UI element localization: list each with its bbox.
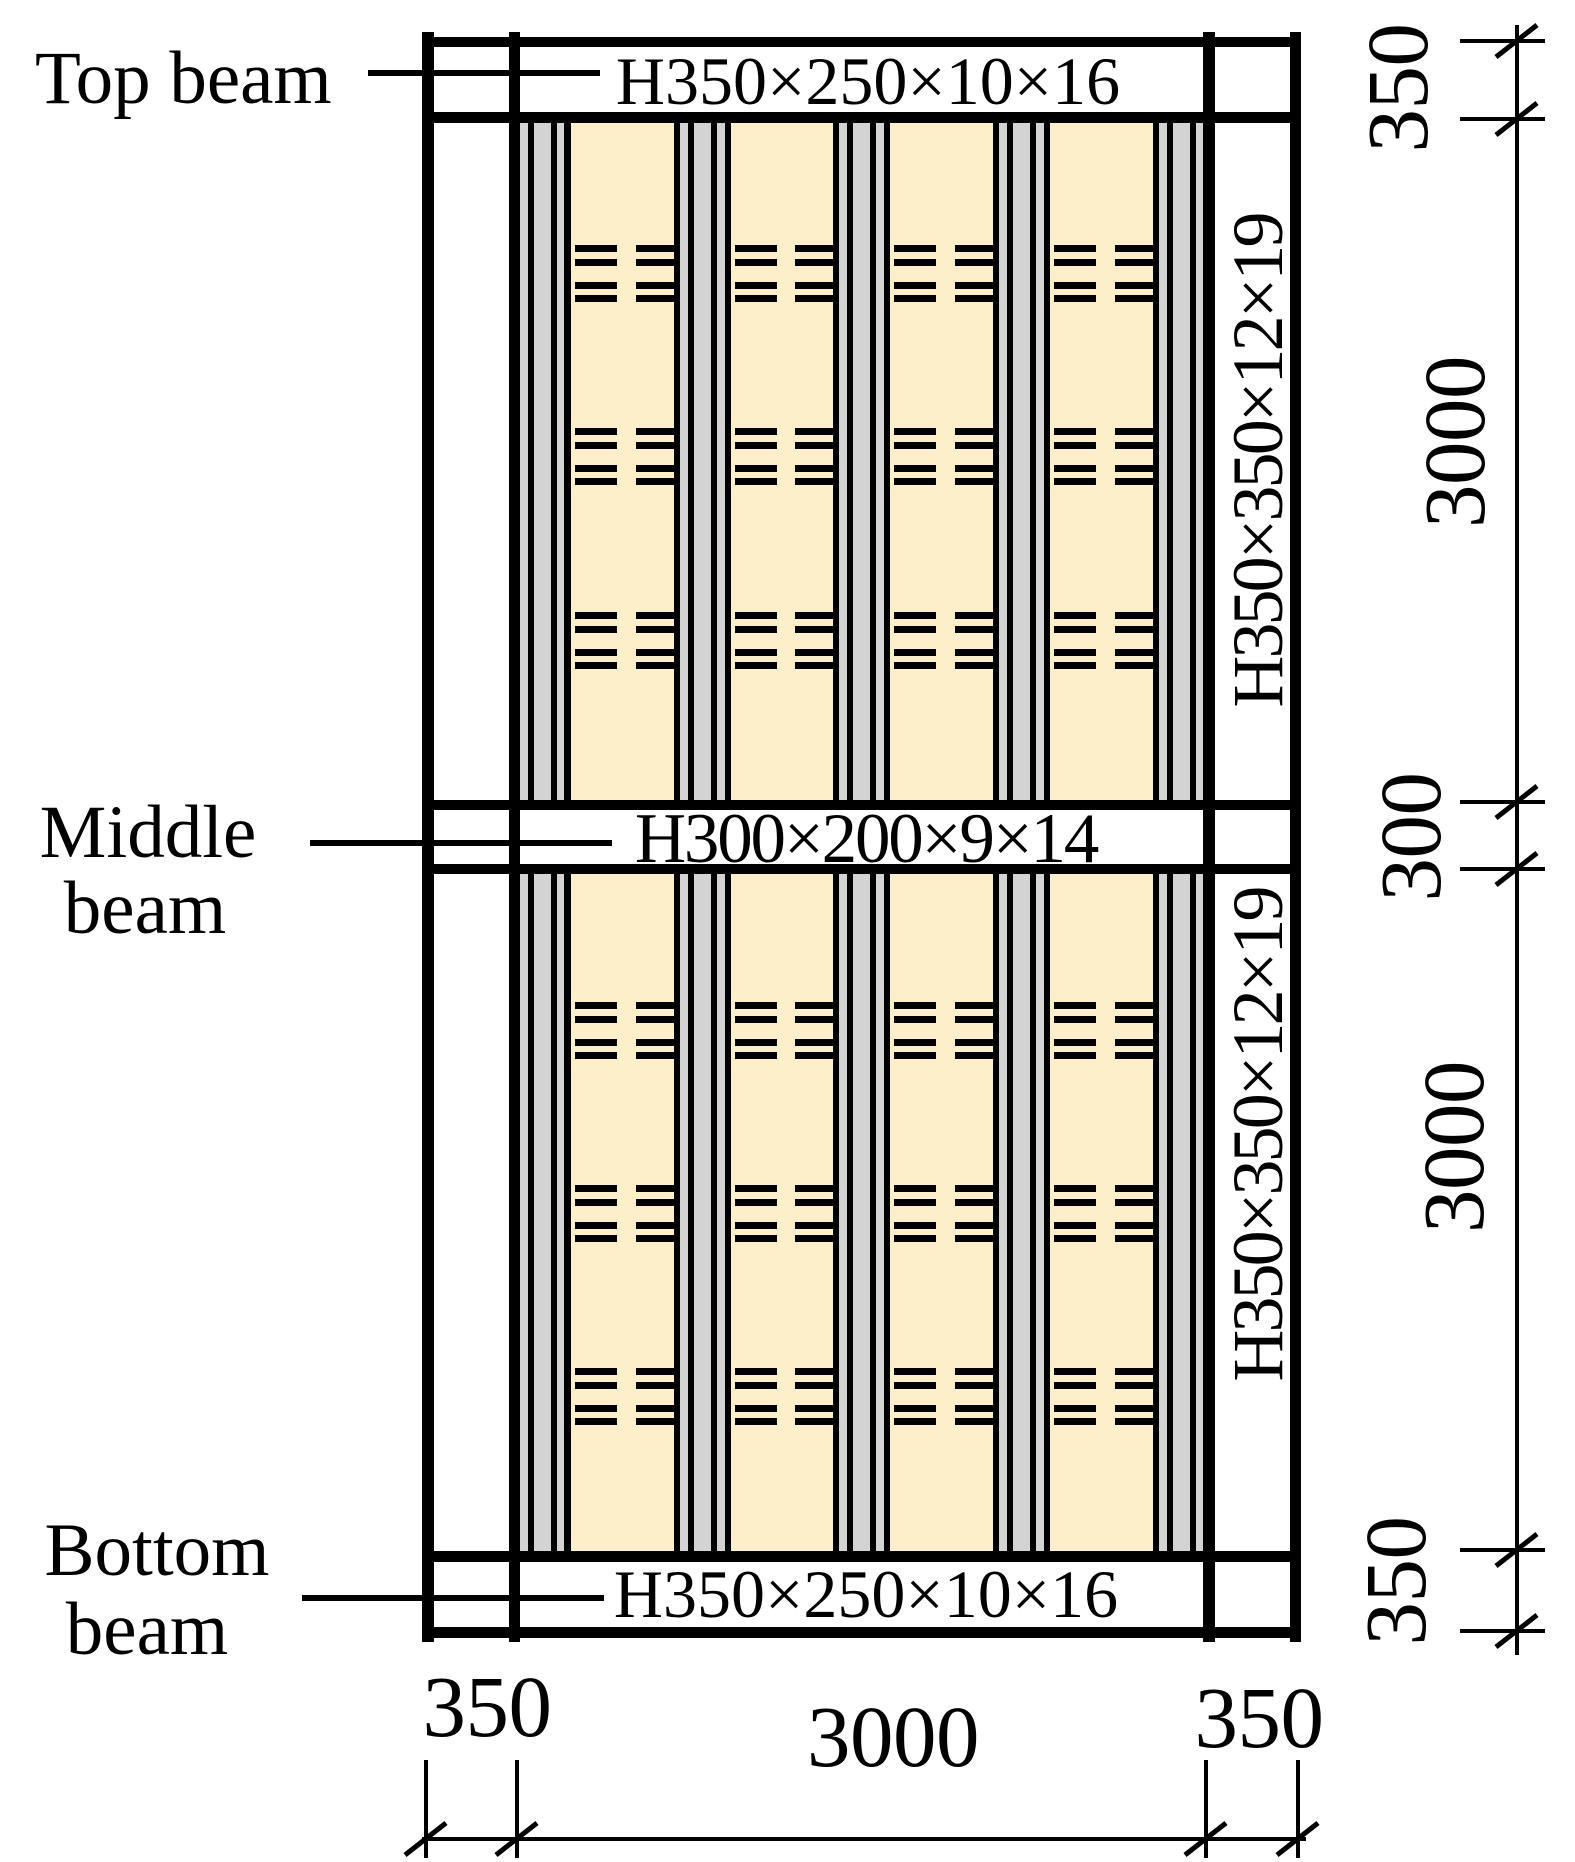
svg-text:beam: beam — [66, 1588, 228, 1671]
svg-text:beam: beam — [64, 867, 226, 950]
svg-text:H300×200×9×14: H300×200×9×14 — [635, 800, 1099, 878]
svg-text:3000: 3000 — [1405, 1061, 1502, 1233]
svg-text:350: 350 — [423, 1658, 552, 1755]
svg-text:H350×250×10×16: H350×250×10×16 — [614, 1556, 1118, 1632]
svg-text:350: 350 — [1347, 1517, 1444, 1646]
svg-text:Bottom: Bottom — [44, 1509, 269, 1592]
svg-text:Middle: Middle — [40, 791, 257, 874]
svg-text:H350×350×12×19: H350×350×12×19 — [1218, 887, 1298, 1381]
svg-text:Top beam: Top beam — [35, 37, 332, 120]
svg-text:350: 350 — [1349, 24, 1446, 153]
svg-text:3000: 3000 — [807, 1688, 979, 1785]
svg-text:300: 300 — [1362, 773, 1459, 902]
svg-text:H350×250×10×16: H350×250×10×16 — [616, 43, 1120, 119]
svg-text:3000: 3000 — [1406, 356, 1503, 528]
svg-text:350: 350 — [1195, 1669, 1324, 1766]
svg-text:H350×350×12×19: H350×350×12×19 — [1218, 213, 1298, 707]
